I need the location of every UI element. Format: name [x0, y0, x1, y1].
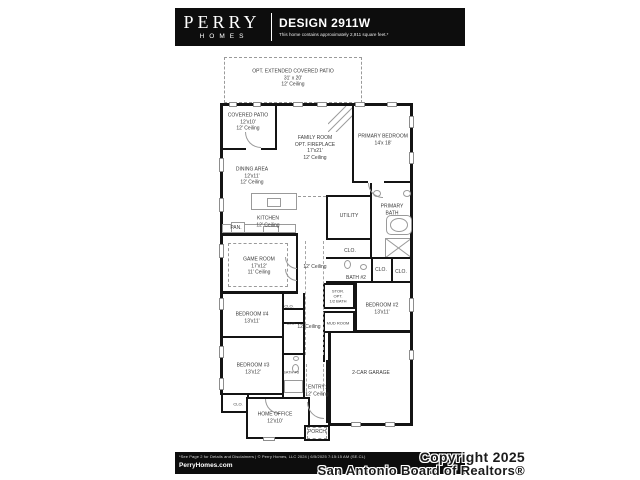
design-title: DESIGN 2911W [279, 17, 388, 29]
perry-homes-logo: PERRY HOMES [175, 13, 269, 41]
room-label-bath-2: BATH #2 [346, 275, 366, 282]
hall-corridor [305, 241, 324, 355]
window [219, 378, 224, 390]
room-label-game-room: GAME ROOM 17'x12' 11' Ceiling [243, 256, 275, 276]
room-dims: 13'x11' [366, 309, 399, 316]
wall [328, 330, 331, 426]
wall [370, 183, 372, 259]
room-label-pantry: PAN. [230, 225, 241, 232]
room-label-home-office: HOME OFFICE 12'x10' [258, 412, 293, 425]
room-ceiling: 12' Ceiling [295, 155, 335, 162]
room-label-garage: 2-CAR GARAGE [352, 370, 390, 377]
window [387, 102, 397, 107]
wall [355, 283, 357, 330]
room-ceiling: 12' Ceiling [228, 125, 268, 132]
vanity-sink-right [403, 190, 411, 197]
window [263, 437, 275, 441]
room-ceiling: 11' Ceiling [243, 269, 275, 276]
wall [352, 181, 368, 183]
ceiling-label-hall-lower: 12' Ceiling [297, 324, 320, 331]
room-label-mud-room: MUD ROOM [325, 321, 351, 326]
closet-label-b2-right: CLO. [395, 269, 407, 276]
room-name: DINING AREA [236, 166, 268, 173]
room-name: PRIMARY BEDROOM [358, 134, 408, 141]
closet-label-b2-left: CLO. [375, 267, 387, 274]
room-label-porch: PORCH [308, 429, 326, 436]
window [219, 298, 224, 310]
room-label-entry: ENTRY: 12' Ceiling [305, 385, 328, 398]
floor-plan: OPT. EXTENDED COVERED PATIO 31' x 20' 12… [205, 52, 445, 454]
wall [261, 148, 277, 150]
wall [326, 257, 412, 259]
room-name: FAMILY ROOM [295, 135, 335, 142]
window [409, 116, 414, 128]
room-dims: 14'x 18' [358, 140, 408, 147]
room-dims: 13'x11' [236, 318, 269, 325]
ceiling-label-hall-upper: 12' Ceiling [303, 264, 326, 271]
window [409, 298, 414, 312]
copyright-line1: Copyright 2025 [318, 450, 525, 465]
wall [328, 423, 413, 426]
room-label-covered-patio: COVERED PATIO 12'x10' 12' Ceiling [228, 112, 268, 132]
window [409, 350, 414, 360]
wall [326, 195, 372, 197]
room-ceiling: 12' Ceiling [252, 81, 334, 88]
copyright-line2: San Antonio Board of Realtors® [318, 464, 525, 478]
room-label-bedroom-3: BEDROOM #3 13'x12' [237, 363, 270, 376]
room-label-utility: UTILITY [340, 213, 359, 220]
window [219, 244, 224, 258]
wall [384, 181, 412, 183]
room-label-bedroom-4: BEDROOM #4 13'x11' [236, 312, 269, 325]
fireplace-hatch [328, 106, 354, 132]
window [229, 102, 237, 107]
wall [220, 291, 298, 294]
wall [275, 103, 277, 150]
sink-bath2 [360, 264, 367, 270]
closet-label-office: CLO. [233, 402, 242, 407]
closet-label-b4-lower: CLO. [286, 321, 295, 326]
room-dims: 13'x12' [237, 369, 270, 376]
room-name: GAME ROOM [243, 256, 275, 263]
room-name: BEDROOM #2 [366, 303, 399, 310]
room-name: BEDROOM #3 [237, 363, 270, 370]
wall [371, 257, 373, 283]
wall [220, 233, 298, 236]
wall [326, 195, 328, 240]
window [219, 158, 224, 172]
window [351, 422, 361, 427]
wall [282, 353, 303, 355]
room-name: HOME OFFICE [258, 412, 293, 419]
room-name: ENTRY: [305, 385, 328, 392]
sink-bath3 [293, 356, 299, 361]
closet-label-utility: CLO. [344, 248, 356, 255]
brand-subname: HOMES [179, 34, 269, 41]
toilet-bath2 [344, 260, 351, 269]
brand-name: PERRY [175, 13, 269, 31]
window [355, 102, 365, 107]
room-name: COVERED PATIO [228, 112, 268, 119]
room-label-kitchen: KITCHEN 12' Ceiling [256, 216, 279, 229]
tub-inner [390, 218, 408, 232]
bath3-tub [284, 380, 303, 393]
room-option2: 1/2 BATH [329, 299, 346, 304]
wall [220, 148, 246, 150]
page: { "header": { "brand_line1": "PERRY", "b… [0, 0, 640, 480]
room-label-bath-3: BATH #3 [283, 370, 299, 375]
window [385, 422, 395, 427]
shower-fixture [385, 238, 412, 258]
room-name: BEDROOM #4 [236, 312, 269, 319]
room-label-family-room: FAMILY ROOM OPT. FIREPLACE 17'x21' 12' C… [295, 135, 335, 161]
room-ceiling: 12' Ceiling [236, 179, 268, 186]
window [219, 346, 224, 358]
room-label-dining-area: DINING AREA 12'x11' 12' Ceiling [236, 166, 268, 186]
room-ceiling: 12' Ceiling [305, 391, 328, 398]
room-label-storage: STOR. OPT. 1/2 BATH [329, 289, 346, 304]
room-name: OPT. EXTENDED COVERED PATIO [252, 68, 334, 75]
window [317, 102, 327, 107]
copyright-watermark: Copyright 2025 San Antonio Board of Real… [318, 450, 525, 478]
header-bar: PERRY HOMES DESIGN 2911W This home conta… [175, 8, 465, 46]
wall [391, 257, 393, 283]
window [253, 102, 261, 107]
design-subtitle: This home contains approximately 2,911 s… [279, 32, 388, 37]
window [409, 152, 414, 164]
island-sink [267, 198, 281, 207]
wall [326, 238, 372, 240]
room-name: KITCHEN [256, 216, 279, 223]
header-text: DESIGN 2911W This home contains approxim… [279, 17, 388, 37]
closet-label-b4-upper: CLO. [284, 304, 293, 309]
room-label-primary-bedroom: PRIMARY BEDROOM 14'x 18' [358, 134, 408, 147]
room-ceiling: 12' Ceiling [256, 222, 279, 229]
window [219, 198, 224, 212]
room-label-opt-extended-patio: OPT. EXTENDED COVERED PATIO 31' x 20' 12… [252, 68, 334, 88]
door-arc [245, 132, 261, 148]
room-label-primary-bath: PRIMARY BATH [379, 204, 405, 217]
family-kitchen-break [298, 196, 326, 197]
room-dims: 12'x10' [258, 418, 293, 425]
window [293, 102, 303, 107]
wall [352, 103, 354, 183]
header-divider [271, 13, 272, 41]
wall [220, 336, 284, 338]
room-label-bedroom-2: BEDROOM #2 13'x11' [366, 303, 399, 316]
